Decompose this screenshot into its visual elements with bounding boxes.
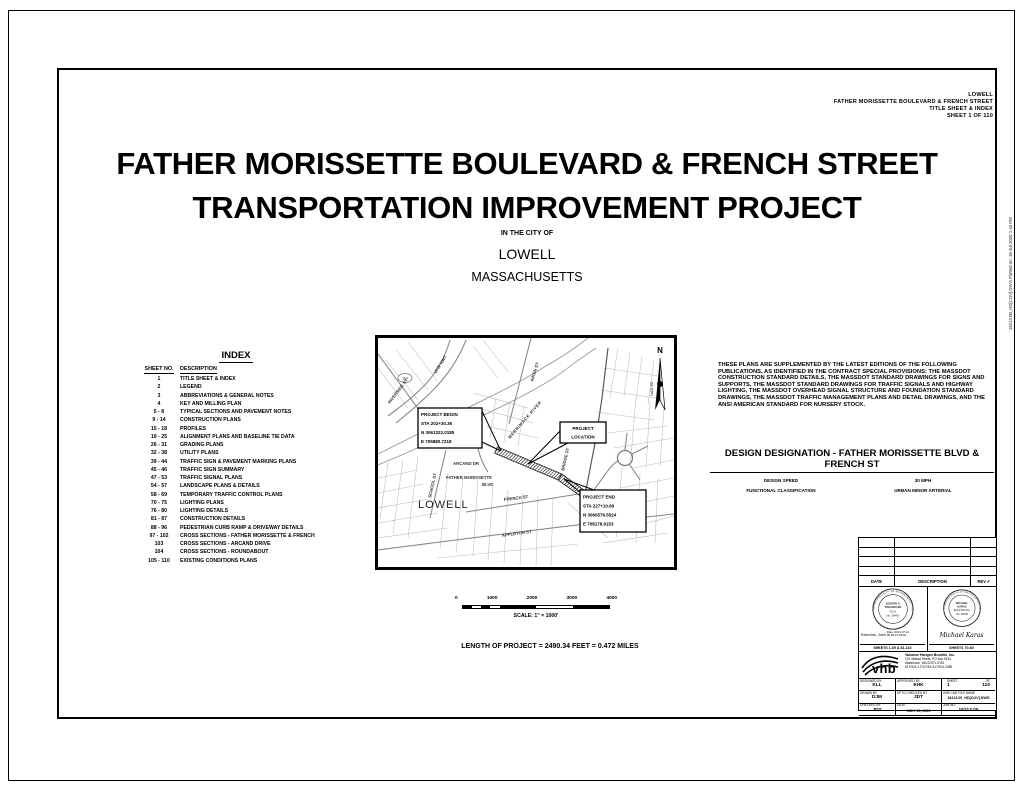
index-sheet-no: 5 - 8 — [138, 409, 180, 415]
merrimack-river-label: MERRIMACK RIVER — [507, 399, 543, 439]
index-description: ALIGNMENT PLANS AND BASELINE TIE DATA — [180, 434, 334, 440]
nad83-label: NAD 83 — [649, 381, 654, 396]
index-description: GRADING PLANS — [180, 442, 334, 448]
roundabout — [618, 451, 633, 466]
index-sheet-no: 4 — [138, 401, 180, 407]
index-row: 1 TITLE SHEET & INDEX — [138, 375, 334, 383]
index-sheet-no: 1 — [138, 376, 180, 382]
end-sta: STA 227+10.69 — [583, 504, 615, 509]
revision-row-empty — [859, 557, 996, 567]
date-cell: DATEJULY 16, 2020 — [896, 704, 942, 716]
index-row: 76 - 80 LIGHTING DETAILS — [138, 507, 334, 515]
index-col-sheet-no: SHEET NO. — [144, 366, 173, 374]
index-title: INDEX — [138, 350, 334, 361]
header-sheet-title: TITLE SHEET & INDEX — [640, 106, 993, 113]
index-row: 58 - 69 TEMPORARY TRAFFIC CONTROL PLANS — [138, 491, 334, 499]
index-sheet-no: 9 - 14 — [138, 417, 180, 423]
index-row: 105 - 110 EXISTING CONDITIONS PLANS — [138, 557, 334, 565]
vhb-logo-text: vhb — [872, 661, 896, 676]
index-rows: 1 TITLE SHEET & INDEX 2 LEGEND 3 ABBREVI… — [138, 375, 334, 565]
index-description: TRAFFIC SIGN & PAVEMENT MARKING PLANS — [180, 459, 334, 465]
civil-sheets-note: SHEETS 1-69 & 81-110 — [860, 644, 925, 650]
title-block: DATE DESCRIPTION REV # COMMONWEALTH OF M… — [858, 537, 997, 711]
title-block-fields: DESIGNED BYKLL APPROVED BYEHK SHEETOF 11… — [859, 679, 996, 716]
index-row: 9 - 14 CONSTRUCTION PLANS — [138, 416, 334, 424]
electrical-sheets-note: SHEETS 70-80 — [929, 644, 995, 650]
company-address: Vanasse Hangen Brustlin, Inc. 101 Walnut… — [905, 652, 996, 678]
index-description: LEGEND — [180, 384, 334, 390]
index-description: UTILITY PLANS — [180, 450, 334, 456]
title-sheet: LOWELL FATHER MORISSETTE BOULEVARD & FRE… — [0, 0, 1024, 791]
end-easting: E 708178.9153 — [583, 522, 614, 527]
svg-text:KARAS: KARAS — [957, 604, 967, 608]
supplemental-notes: THESE PLANS ARE SUPPLEMENTED BY THE LATE… — [718, 362, 994, 408]
index-description: LIGHTING PLANS — [180, 500, 334, 506]
index-description: CROSS SECTIONS - ARCAND DRIVE — [180, 541, 334, 547]
index-description: TITLE SHEET & INDEX — [180, 376, 334, 382]
checked-by-cell: CHECKED BYJDT — [859, 704, 896, 716]
city-name: LOWELL — [57, 246, 997, 262]
index-row: 45 - 46 TRAFFIC SIGN SUMMARY — [138, 466, 334, 474]
vfw-hwy-label: VFW HWY — [433, 354, 448, 374]
revision-row-empty — [859, 548, 996, 558]
functional-classification-row: FUNCTIONAL CLASSIFICATION URBAN MINOR AR… — [710, 488, 994, 493]
project-begin-callout: PROJECT BEGIN STA 202+30.35 N 3061322.01… — [418, 408, 501, 451]
sheet-header-block: LOWELL FATHER MORISSETTE BOULEVARD & FRE… — [640, 92, 993, 120]
civil-signature-date: Date: 2021.07.1409:56:27-04'00' — [887, 631, 909, 637]
revision-header-row: DATE DESCRIPTION REV # — [859, 576, 996, 587]
index-description: CONSTRUCTION PLANS — [180, 417, 334, 423]
company-band: vhb Vanasse Hangen Brustlin, Inc. 101 Wa… — [859, 652, 996, 679]
civil-pe-seal: COMMONWEALTH OF MASSACHUSETTS JOSEPH A. … — [870, 587, 916, 633]
index-sheet-no: 58 - 69 — [138, 492, 180, 498]
project-title-line1: FATHER MORISSETTE BOULEVARD & FRENCH STR… — [57, 146, 997, 182]
locus-map: 110 RIVERSIDE ST VFW HWY AIKEN ST MERRIM… — [375, 335, 677, 570]
pe-stamps: COMMONWEALTH OF MASSACHUSETTS JOSEPH A. … — [859, 587, 996, 652]
index-sheet-no: 15 - 18 — [138, 426, 180, 432]
civil-stamp-cell: COMMONWEALTH OF MASSACHUSETTS JOSEPH A. … — [859, 587, 928, 651]
design-designation-title: DESIGN DESIGNATION - FATHER MORISSETTE B… — [710, 448, 994, 473]
begin-northing: N 3061322.0185 — [421, 430, 455, 435]
revision-rev-header: REV # — [971, 576, 996, 586]
functional-classification-value: URBAN MINOR ARTERIAL — [852, 488, 994, 493]
in-the-city-of: IN THE CITY OF — [57, 230, 997, 237]
index-description: TRAFFIC SIGNAL PLANS — [180, 475, 334, 481]
index-description: LIGHTING DETAILS — [180, 508, 334, 514]
locus-map-svg: 110 RIVERSIDE ST VFW HWY AIKEN ST MERRIM… — [378, 338, 674, 567]
north-n-label: N — [657, 346, 663, 355]
project-title-line2: TRANSPORTATION IMPROVEMENT PROJECT — [57, 190, 997, 226]
functional-classification-label: FUNCTIONAL CLASSIFICATION — [710, 488, 852, 493]
header-project: FATHER MORISSETTE BOULEVARD & FRENCH STR… — [640, 99, 993, 106]
index-row: 19 - 25 ALIGNMENT PLANS AND BASELINE TIE… — [138, 433, 334, 441]
index-description: TRAFFIC SIGN SUMMARY — [180, 467, 334, 473]
electrical-signature: Michael Karas — [932, 632, 992, 639]
index-row: 70 - 75 LIGHTING PLANS — [138, 499, 334, 507]
french-st-label: FRENCH ST — [504, 494, 529, 502]
index-sheet-no: 19 - 25 — [138, 434, 180, 440]
index-description: PEDESTRIAN CURB RAMP & DRIVEWAY DETAILS — [180, 525, 334, 531]
index-sheet-no: 3 — [138, 393, 180, 399]
length-of-project-note: LENGTH OF PROJECT = 2490.34 FEET = 0.472… — [380, 643, 720, 650]
index-description: EXISTING CONDITIONS PLANS — [180, 558, 334, 564]
index-description: TEMPORARY TRAFFIC CONTROL PLANS — [180, 492, 334, 498]
designed-by-cell: DESIGNED BYKLL — [859, 679, 896, 691]
father-morissette-blvd-label: BLVD — [482, 482, 493, 487]
svg-text:ELECTRICAL: ELECTRICAL — [953, 608, 970, 612]
sheet-index: INDEX SHEET NO. DESCRIPTION 1 TITLE SHEE… — [138, 350, 334, 565]
header-sheet-number: SHEET 1 OF 110 — [640, 113, 993, 120]
end-title: PROJECT END — [583, 495, 616, 500]
scale-label: SCALE: 1" = 1000' — [455, 613, 617, 619]
svg-text:MICHAEL: MICHAEL — [956, 601, 968, 605]
index-row: 15 - 18 PROFILES — [138, 425, 334, 433]
vhb-logo: vhb — [859, 652, 905, 678]
index-row: 104 CROSS SECTIONS - ROUNDABOUT — [138, 548, 334, 556]
scale-tick-2000: 2000 — [527, 596, 538, 601]
svg-text:No. 38435: No. 38435 — [955, 612, 968, 616]
index-sheet-no: 45 - 46 — [138, 467, 180, 473]
scale-tick-4000: 4000 — [606, 596, 617, 601]
index-sheet-no: 26 - 31 — [138, 442, 180, 448]
dftg-checked-by-cell: DFTG CHECKED BYJDT — [896, 691, 942, 703]
index-description: TYPICAL SECTIONS AND PAVEMENT NOTES — [180, 409, 334, 415]
index-row: 54 - 57 LANDSCAPE PLANS & DETAILS — [138, 482, 334, 490]
begin-easting: E 705880.7218 — [421, 439, 452, 444]
aiken-st-label: AIKEN ST — [529, 361, 540, 382]
index-description: PROFILES — [180, 426, 334, 432]
header-municipality: LOWELL — [640, 92, 993, 99]
civil-signature-name: Trearchis, Josh — [860, 633, 886, 637]
index-row: 97 - 102 CROSS SECTIONS - FATHER MORISSE… — [138, 532, 334, 540]
index-sheet-no: 39 - 44 — [138, 459, 180, 465]
index-col-description: DESCRIPTION — [180, 366, 217, 374]
index-row: 3 ABBREVIATIONS & GENERAL NOTES — [138, 392, 334, 400]
electrical-pe-seal: COMMONWEALTH OF MASSACHUSETTS MICHAEL KA… — [941, 588, 983, 630]
index-row: 88 - 96 PEDESTRIAN CURB RAMP & DRIVEWAY … — [138, 524, 334, 532]
begin-sta: STA 202+30.35 — [421, 421, 453, 426]
scale-tick-3000: 3000 — [566, 596, 577, 601]
svg-text:No. 39492: No. 39492 — [886, 614, 900, 618]
plot-margin-note: 16213.00_HD[COV].DWG Plotted on: 16-Jul-… — [1008, 66, 1017, 330]
index-sheet-no: 54 - 57 — [138, 483, 180, 489]
index-sheet-no: 105 - 110 — [138, 558, 180, 564]
revision-description-header: DESCRIPTION — [895, 576, 971, 586]
job-number-cell: JOB NO.16213.00 — [942, 704, 995, 716]
drawn-by-cell: DRAWN BYDJM — [859, 691, 896, 703]
begin-title: PROJECT BEGIN — [421, 412, 458, 417]
index-sheet-no: 81 - 87 — [138, 516, 180, 522]
scale-tick-1000: 1000 — [487, 596, 498, 601]
end-northing: N 3060576.5524 — [583, 513, 617, 518]
index-row: 103 CROSS SECTIONS - ARCAND DRIVE — [138, 540, 334, 548]
index-row: 32 - 38 UTILITY PLANS — [138, 449, 334, 457]
approved-by-cell: APPROVED BYEHK — [896, 679, 942, 691]
index-row: 81 - 87 CONSTRUCTION DETAILS — [138, 515, 334, 523]
revision-row-empty — [859, 538, 996, 548]
arcand-dr-label: ARCAND DR — [453, 461, 480, 466]
father-morissette-label: FATHER MORISSETTE — [446, 475, 492, 480]
sheet-of-cell: SHEETOF 1110 — [942, 679, 995, 691]
index-description: CROSS SECTIONS - FATHER MORISSETTE & FRE… — [180, 533, 334, 539]
design-speed-value: 30 MPH — [852, 478, 994, 483]
index-sheet-no: 47 - 53 — [138, 475, 180, 481]
index-description: LANDSCAPE PLANS & DETAILS — [180, 483, 334, 489]
index-row: 4 KEY AND MILLING PLAN — [138, 400, 334, 408]
index-sheet-no: 88 - 96 — [138, 525, 180, 531]
index-description: CONSTRUCTION DETAILS — [180, 516, 334, 522]
location-line2: LOCATION — [571, 435, 594, 440]
design-speed-row: DESIGN SPEED 30 MPH — [710, 478, 994, 483]
index-description: CROSS SECTIONS - ROUNDABOUT — [180, 549, 334, 555]
index-header: SHEET NO. DESCRIPTION — [138, 366, 334, 375]
index-row: 39 - 44 TRAFFIC SIGN & PAVEMENT MARKING … — [138, 458, 334, 466]
scale-tick-0: 0 — [455, 596, 458, 601]
index-sheet-no: 2 — [138, 384, 180, 390]
design-speed-label: DESIGN SPEED — [710, 478, 852, 483]
index-row: 5 - 8 TYPICAL SECTIONS AND PAVEMENT NOTE… — [138, 408, 334, 416]
index-description: ABBREVIATIONS & GENERAL NOTES — [180, 393, 334, 399]
index-row: 47 - 53 TRAFFIC SIGNAL PLANS — [138, 474, 334, 482]
revision-row-empty — [859, 567, 996, 577]
revision-date-header: DATE — [859, 576, 895, 586]
index-row: 2 LEGEND — [138, 383, 334, 391]
index-sheet-no: 97 - 102 — [138, 533, 180, 539]
scale-bar — [462, 605, 610, 609]
civil-signature: Trearchis, Josh Date: 2021.07.1409:56:27… — [860, 631, 926, 637]
company-phone: 617/924-1770 FAX 617/924-2286 — [905, 666, 995, 670]
index-sheet-no: 76 - 80 — [138, 508, 180, 514]
project-corridor — [495, 447, 587, 498]
index-sheet-no: 103 — [138, 541, 180, 547]
index-sheet-no: 104 — [138, 549, 180, 555]
lowell-city-label: LOWELL — [418, 499, 469, 511]
index-sheet-no: 70 - 75 — [138, 500, 180, 506]
bridge-st-label: BRIDGE ST — [560, 447, 570, 471]
scale-tick-labels: 0 1000 2000 3000 4000 — [455, 596, 617, 601]
design-designation: DESIGN DESIGNATION - FATHER MORISSETTE B… — [710, 448, 994, 493]
index-row: 26 - 31 GRADING PLANS — [138, 441, 334, 449]
electrical-stamp-cell: COMMONWEALTH OF MASSACHUSETTS MICHAEL KA… — [928, 587, 997, 651]
index-sheet-no: 32 - 38 — [138, 450, 180, 456]
state-name: MASSACHUSETTS — [57, 270, 997, 284]
location-line1: PROJECT — [572, 426, 594, 431]
index-description: KEY AND MILLING PLAN — [180, 401, 334, 407]
cad-file-cell: VHB CAD FILE NAME16213.00_HD[COV].DWG — [942, 691, 995, 703]
